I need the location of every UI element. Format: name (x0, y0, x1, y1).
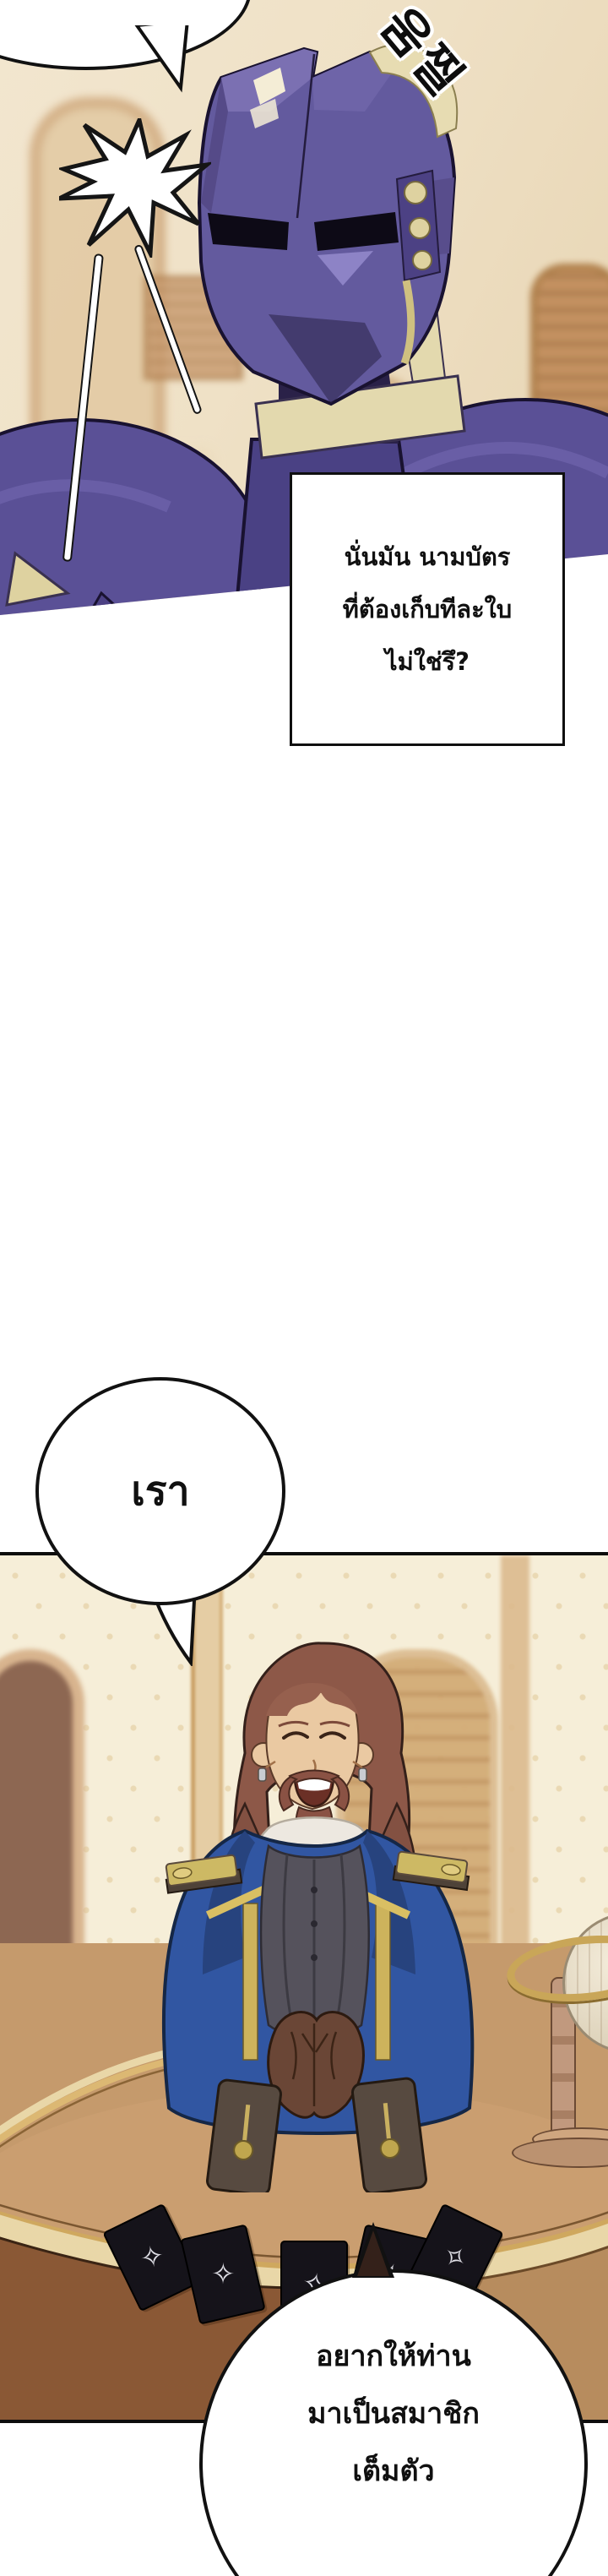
speech-line: อยากให้ท่าน (316, 2333, 471, 2378)
globe-base (512, 2138, 608, 2168)
narration-line: นั่นมัน นามบัตร (345, 537, 511, 576)
narration-box: นั่นมัน นามบัตร ที่ต้องเก็บทีละใบ ไม่ใช่… (290, 472, 565, 746)
four-pointed-star-icon: ✧ (210, 2257, 235, 2291)
globe-stand (503, 1914, 608, 2178)
four-pointed-star-icon: ✧ (434, 2237, 475, 2279)
character-guildmaster (118, 1635, 515, 2192)
narration-line: ที่ต้องเก็บทีละใบ (343, 590, 512, 629)
speech-text: เรา (131, 1459, 189, 1523)
speech-bubble-tail (127, 19, 203, 95)
speech-bubble-we: เรา (35, 1377, 285, 1605)
speech-line: มาเป็นสมาชิก (307, 2390, 480, 2436)
speech-line: เต็มตัว (352, 2448, 434, 2493)
comic-page: 움찔 นั่นมัน นามบัตร ที่ต้องเก็บทีละใบ ไม่… (0, 0, 608, 2576)
four-pointed-star-icon: ✧ (137, 2238, 167, 2276)
narration-line: ไม่ใช่รึ? (385, 642, 470, 681)
impact-starburst-icon (59, 118, 211, 258)
globe-ring (504, 1928, 608, 2008)
